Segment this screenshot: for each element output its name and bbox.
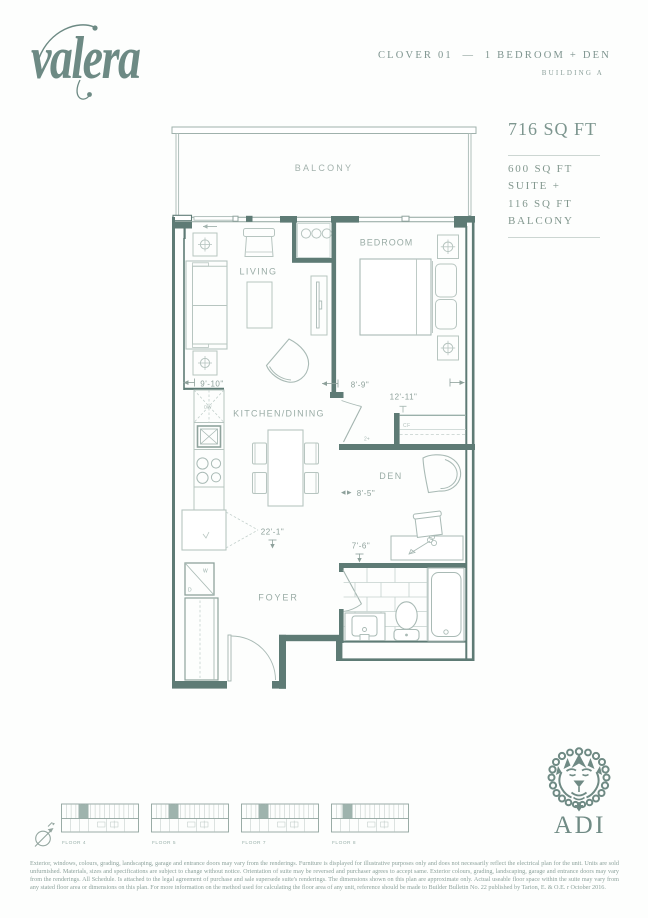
svg-text:DEN: DEN <box>379 471 403 481</box>
svg-text:BALCONY: BALCONY <box>295 163 353 173</box>
svg-text:FLOOR 4: FLOOR 4 <box>62 840 86 846</box>
svg-text:12'-11": 12'-11" <box>390 393 418 402</box>
svg-text:LIVING: LIVING <box>240 267 278 277</box>
svg-text:7'-6": 7'-6" <box>352 542 370 551</box>
svg-text:22'-1": 22'-1" <box>261 528 284 537</box>
svg-text:CF: CF <box>403 423 411 429</box>
svg-text:8'-9": 8'-9" <box>351 381 369 390</box>
svg-text:2+: 2+ <box>364 437 370 443</box>
svg-text:D: D <box>188 588 192 594</box>
svg-text:FOYER: FOYER <box>258 593 299 603</box>
svg-text:8'-5": 8'-5" <box>357 489 375 498</box>
svg-text:DW: DW <box>204 405 212 410</box>
svg-text:BEDROOM: BEDROOM <box>360 238 414 248</box>
svg-text:FLOOR 7: FLOOR 7 <box>242 840 266 846</box>
svg-text:KITCHEN/DINING: KITCHEN/DINING <box>233 409 325 419</box>
svg-text:FLOOR 5: FLOOR 5 <box>152 840 176 846</box>
svg-text:FLOOR 8: FLOOR 8 <box>332 840 356 846</box>
svg-text:9'-10": 9'-10" <box>200 380 223 389</box>
svg-text:W: W <box>203 569 208 575</box>
